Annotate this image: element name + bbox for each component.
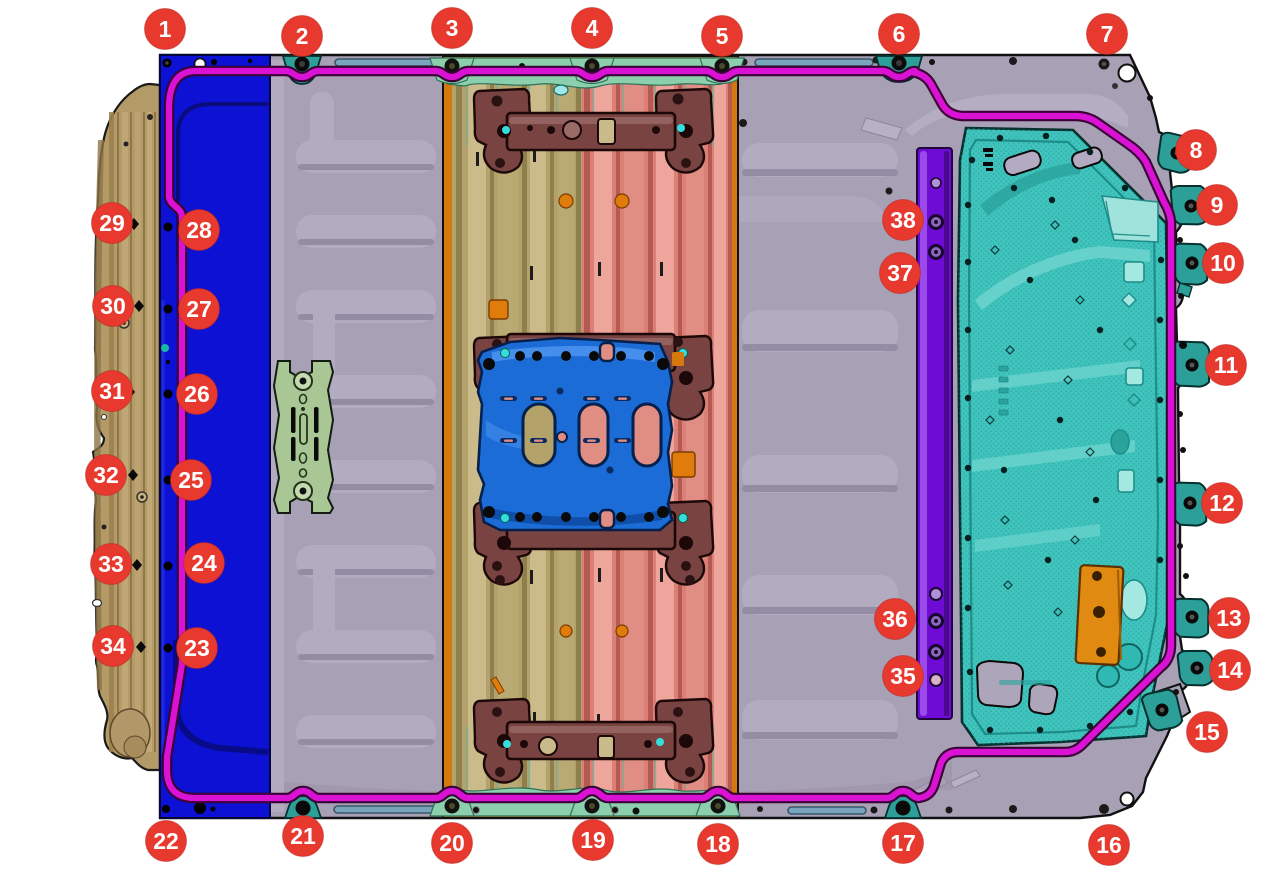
svg-text:22: 22 bbox=[153, 828, 179, 854]
svg-text:4: 4 bbox=[586, 15, 599, 41]
svg-text:28: 28 bbox=[186, 217, 212, 243]
svg-text:14: 14 bbox=[1217, 657, 1243, 683]
svg-text:20: 20 bbox=[439, 830, 465, 856]
svg-text:34: 34 bbox=[100, 633, 126, 659]
svg-text:16: 16 bbox=[1096, 832, 1122, 858]
svg-text:12: 12 bbox=[1209, 490, 1235, 516]
svg-text:8: 8 bbox=[1190, 137, 1203, 163]
svg-text:15: 15 bbox=[1194, 719, 1220, 745]
svg-text:33: 33 bbox=[98, 551, 124, 577]
svg-text:35: 35 bbox=[890, 663, 916, 689]
svg-text:32: 32 bbox=[93, 462, 119, 488]
svg-text:5: 5 bbox=[716, 23, 729, 49]
svg-text:7: 7 bbox=[1101, 21, 1114, 47]
svg-text:9: 9 bbox=[1211, 192, 1224, 218]
svg-text:27: 27 bbox=[186, 296, 212, 322]
svg-text:13: 13 bbox=[1216, 605, 1242, 631]
svg-text:19: 19 bbox=[580, 827, 606, 853]
svg-text:25: 25 bbox=[178, 467, 204, 493]
svg-text:11: 11 bbox=[1214, 352, 1239, 378]
svg-text:23: 23 bbox=[184, 635, 210, 661]
svg-text:24: 24 bbox=[191, 550, 217, 576]
svg-text:29: 29 bbox=[99, 210, 125, 236]
svg-text:17: 17 bbox=[890, 830, 916, 856]
svg-text:3: 3 bbox=[446, 15, 459, 41]
svg-text:30: 30 bbox=[100, 293, 126, 319]
svg-text:36: 36 bbox=[882, 606, 908, 632]
svg-text:37: 37 bbox=[887, 260, 913, 286]
svg-text:38: 38 bbox=[890, 207, 916, 233]
svg-text:18: 18 bbox=[705, 831, 731, 857]
svg-text:1: 1 bbox=[159, 16, 172, 42]
svg-text:2: 2 bbox=[296, 23, 309, 49]
svg-text:26: 26 bbox=[184, 381, 210, 407]
svg-text:21: 21 bbox=[290, 823, 316, 849]
svg-text:6: 6 bbox=[893, 21, 906, 47]
svg-text:10: 10 bbox=[1210, 250, 1236, 276]
svg-text:31: 31 bbox=[99, 378, 125, 404]
